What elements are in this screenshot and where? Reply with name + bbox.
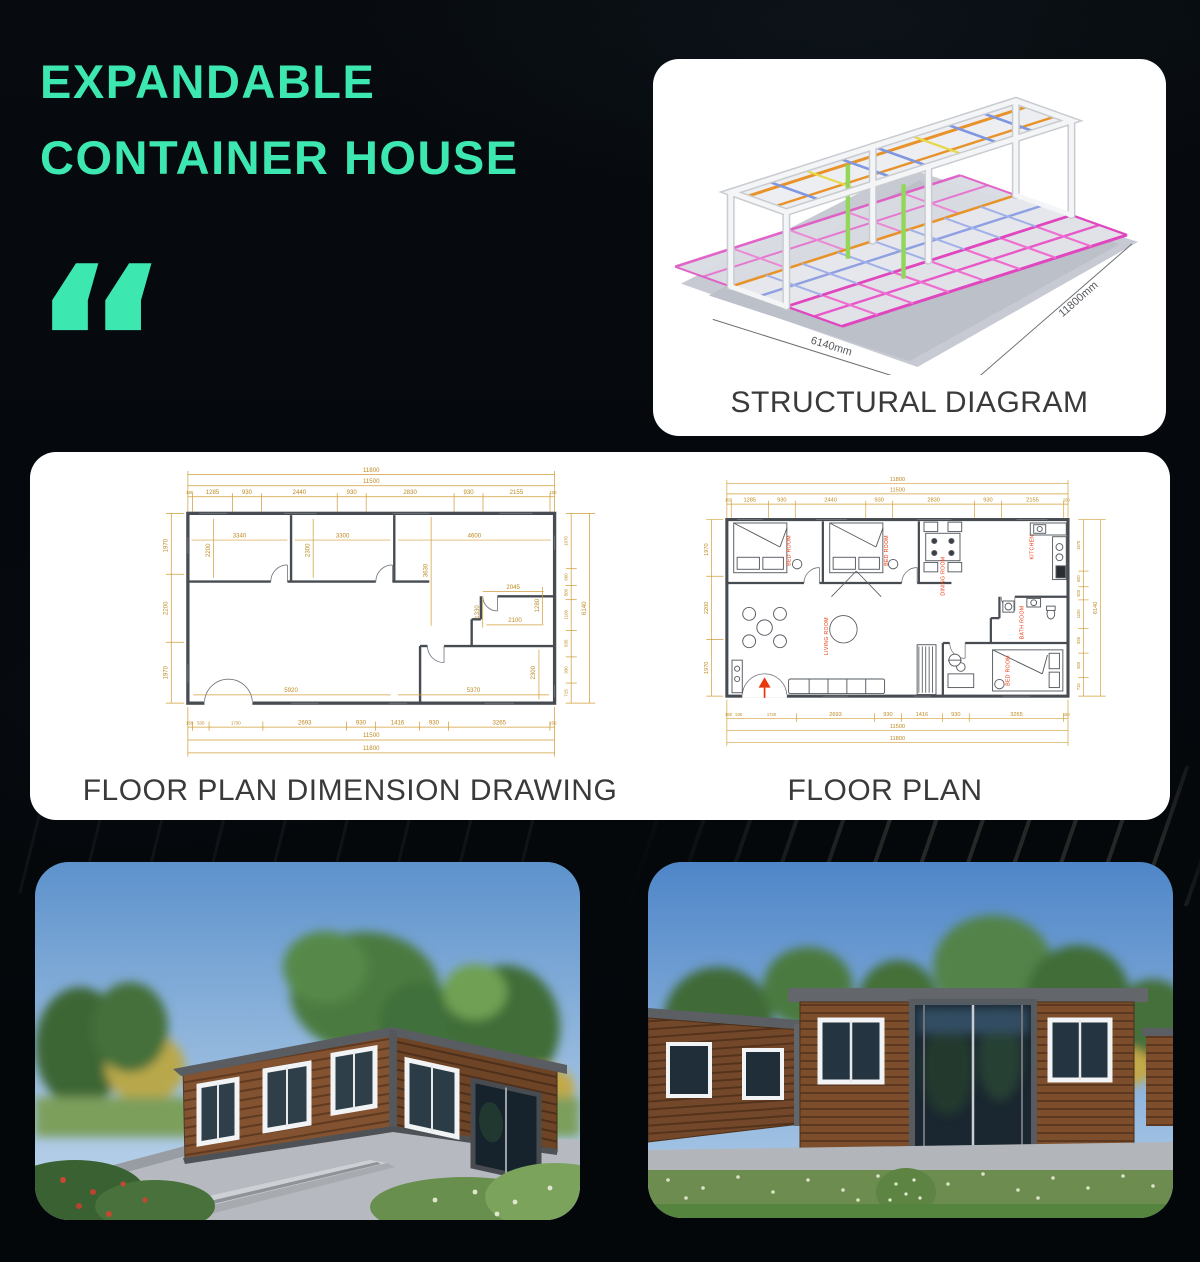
dim-seg: 150 <box>549 720 557 725</box>
dim-side: 500 <box>564 588 569 596</box>
dim-side: 2200 <box>163 601 170 615</box>
dim-seg: 930 <box>356 719 367 726</box>
dim-int: 3300 <box>336 532 350 539</box>
dim-seg: 2693 <box>298 719 312 726</box>
exterior-photo-corner-view <box>35 862 580 1220</box>
dim-int: 3340 <box>233 532 247 539</box>
dim-seg: 150 <box>549 490 557 495</box>
dim-seg: 530 <box>197 720 205 725</box>
dim-seg: 1285 <box>743 498 756 504</box>
room-label-bath: BATH ROOM <box>1019 606 1025 640</box>
dim-side-total: 6140 <box>581 601 588 615</box>
dim-seg: 2440 <box>293 489 307 496</box>
dim-side: 600 <box>564 573 569 581</box>
dim-total-inner: 11500 <box>890 487 905 493</box>
dim-int: 2200 <box>205 543 212 557</box>
dim-seg: 150 <box>1063 712 1071 717</box>
floorplan-left-caption: FLOOR PLAN DIMENSION DRAWING <box>50 774 650 808</box>
dim-side: 600 <box>1076 575 1081 583</box>
floorplan-card: 11800 11500 150 1285 930 2440 930 2830 9… <box>30 452 1170 820</box>
dim-int: 2045 <box>506 584 520 591</box>
dim-side-total: 6140 <box>1093 602 1099 615</box>
room-label-bedroom-1: BED ROOM <box>786 535 792 566</box>
dim-total-inner-b: 11500 <box>363 732 380 739</box>
dim-seg: 930 <box>429 719 440 726</box>
dim-seg: 930 <box>983 498 992 504</box>
promo-page: EXPANDABLE CONTAINER HOUSE “ <box>0 0 1200 1262</box>
dim-side: 1970 <box>163 538 170 552</box>
dim-seg: 150 <box>1063 498 1071 503</box>
dim-total-inner-b: 11500 <box>890 724 905 730</box>
dim-seg: 150 <box>186 490 194 495</box>
dim-length-label: 11800mm <box>1057 279 1101 319</box>
dim-int: 5370 <box>467 687 481 694</box>
dim-int: 2100 <box>508 617 522 624</box>
structural-diagram-card: 6140mm 11800mm STRUCTURAL DIAGRAM <box>653 59 1166 436</box>
dim-side: 930 <box>564 666 569 674</box>
room-label-bedroom-3: BED ROOM <box>1006 655 1012 686</box>
dim-side: 1970 <box>163 665 170 679</box>
dim-total-bottom: 11800 <box>363 745 380 752</box>
dim-total-top: 11800 <box>363 467 380 474</box>
floorplan-furnished: 11800 11500 150 1285 930 2440 930 2830 9… <box>660 468 1140 764</box>
structural-caption: STRUCTURAL DIAGRAM <box>653 386 1166 420</box>
dim-seg: 3265 <box>1010 712 1023 718</box>
dim-seg: 530 <box>735 712 743 717</box>
dim-seg: 930 <box>951 712 960 718</box>
dim-seg: 2830 <box>403 489 417 496</box>
dim-total-inner: 11500 <box>363 478 380 485</box>
dim-seg: 2693 <box>829 712 842 718</box>
dim-side: 930 <box>1076 661 1081 669</box>
dim-seg: 150 <box>725 498 733 503</box>
dim-side: 1100 <box>564 609 569 619</box>
dim-seg: 2440 <box>824 498 837 504</box>
dim-side: 1100 <box>1076 609 1081 619</box>
dim-side: 1970 <box>1076 540 1081 550</box>
dim-side: 935 <box>1076 636 1081 644</box>
dim-total-top: 11800 <box>890 477 905 483</box>
dim-seg: 930 <box>883 712 892 718</box>
page-title-line2: CONTAINER HOUSE <box>40 120 519 196</box>
dim-seg: 2830 <box>927 498 940 504</box>
dim-int: 4600 <box>468 532 482 539</box>
dim-seg: 2155 <box>510 489 524 496</box>
dim-total-bottom: 11800 <box>890 736 905 742</box>
dim-side: 715 <box>1076 683 1081 691</box>
dim-seg: 150 <box>725 712 733 717</box>
structural-diagram-image: 6140mm 11800mm <box>661 73 1158 375</box>
exterior-photo-front-view <box>648 862 1173 1218</box>
dim-int: 2300 <box>530 665 537 679</box>
room-label-living: LIVING ROOM <box>824 617 830 655</box>
dim-side: 1970 <box>704 543 710 556</box>
dim-side: 935 <box>564 639 569 647</box>
dim-seg: 3265 <box>492 719 506 726</box>
dim-seg: 930 <box>875 498 884 504</box>
dim-side: 2200 <box>704 602 710 615</box>
dim-seg: 1730 <box>767 712 777 717</box>
dim-seg: 2155 <box>1026 498 1039 504</box>
room-label-kitchen: KITCHEN <box>1030 535 1036 560</box>
dim-seg: 1285 <box>206 489 220 496</box>
dim-seg: 150 <box>186 720 194 725</box>
room-label-bedroom-2: BED ROOM <box>884 535 890 566</box>
dim-seg: 930 <box>242 489 253 496</box>
dim-seg: 1730 <box>231 720 241 725</box>
dim-side: 1970 <box>564 536 569 546</box>
dim-seg: 930 <box>777 498 786 504</box>
dim-int: 3630 <box>422 563 429 577</box>
page-title: EXPANDABLE CONTAINER HOUSE <box>40 44 519 196</box>
dim-int: 1330 <box>474 605 481 619</box>
dim-seg: 1416 <box>391 719 405 726</box>
floorplan-dimension-drawing: 11800 11500 150 1285 930 2440 930 2830 9… <box>116 458 632 776</box>
room-label-dining: DINING ROOM <box>941 557 947 596</box>
dim-int: 2300 <box>305 543 312 557</box>
quote-mark: “ <box>30 238 171 438</box>
dim-int: 1280 <box>534 598 541 612</box>
page-title-line1: EXPANDABLE <box>40 44 519 120</box>
dim-side: 1970 <box>704 662 710 675</box>
dim-int: 5920 <box>284 687 298 694</box>
dim-side: 715 <box>564 689 569 697</box>
dim-side: 500 <box>1076 589 1081 597</box>
dim-seg: 1416 <box>916 712 929 718</box>
dim-seg: 930 <box>347 489 358 496</box>
dim-seg: 930 <box>463 489 474 496</box>
floorplan-right-caption: FLOOR PLAN <box>685 774 1085 808</box>
